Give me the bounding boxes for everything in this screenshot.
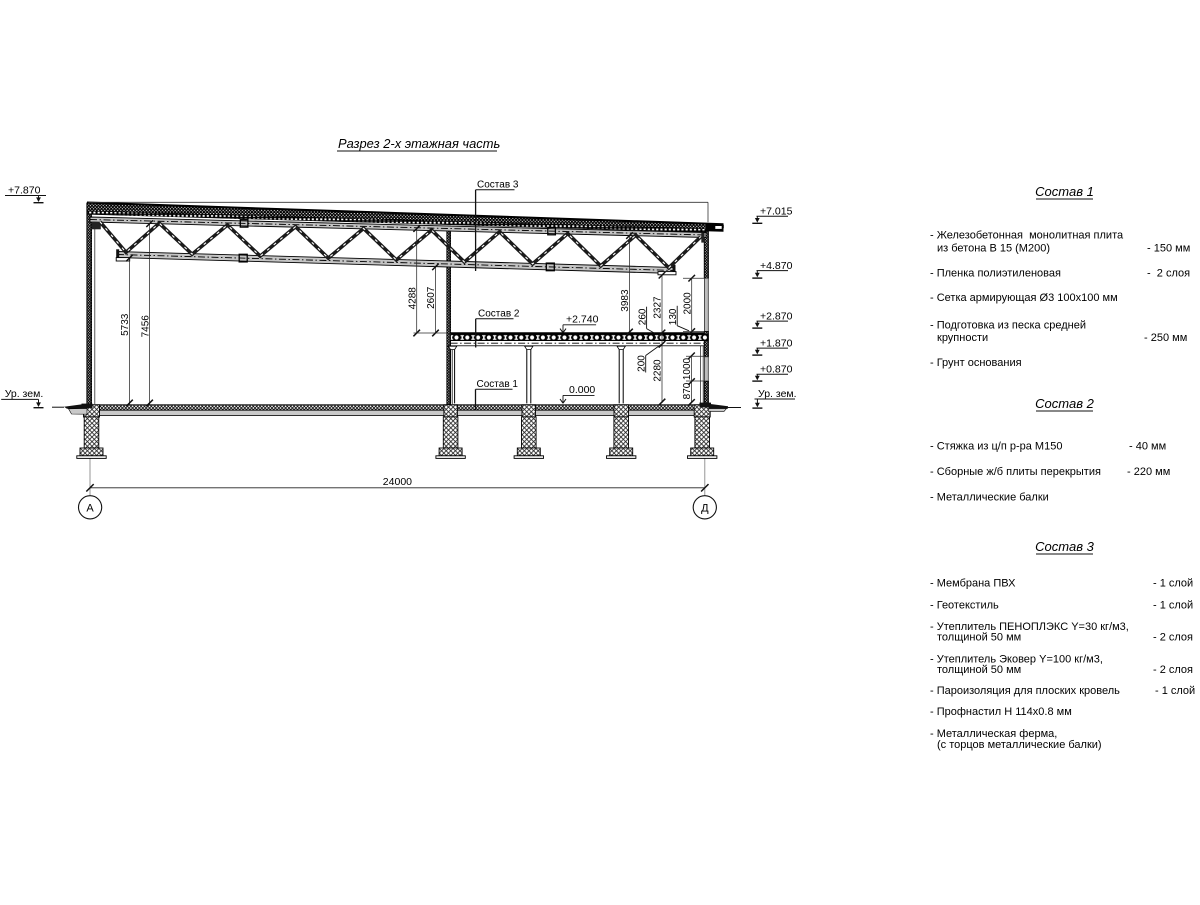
svg-text:- Пароизоляция для плоских кро: - Пароизоляция для плоских кровель bbox=[930, 685, 1120, 697]
svg-text:(с торцов металлические балки): (с торцов металлические балки) bbox=[937, 739, 1102, 751]
svg-text:- Профнастил Н 114х0.8 мм: - Профнастил Н 114х0.8 мм bbox=[930, 706, 1072, 718]
svg-text:- Сетка армирующая Ø3 100х100: - Сетка армирующая Ø3 100х100 мм bbox=[930, 292, 1118, 304]
svg-text:3983: 3983 bbox=[620, 289, 631, 312]
svg-text:+1.870: +1.870 bbox=[760, 337, 793, 349]
svg-text:- 1 слой: - 1 слой bbox=[1155, 685, 1195, 697]
svg-text:+2.740: +2.740 bbox=[566, 314, 599, 326]
svg-text:- Геотекстиль: - Геотекстиль bbox=[930, 600, 999, 612]
svg-text:Разрез 2-х этажная часть: Разрез 2-х этажная часть bbox=[338, 136, 500, 151]
svg-text:из бетона В 15 (М200): из бетона В 15 (М200) bbox=[937, 243, 1050, 255]
svg-text:Состав 2: Состав 2 bbox=[1035, 396, 1094, 411]
svg-text:+2.870: +2.870 bbox=[760, 310, 793, 322]
svg-text:- Железобетонная монолитная п: - Железобетонная монолитная плита bbox=[930, 230, 1124, 242]
svg-text:Состав 2: Состав 2 bbox=[478, 309, 520, 320]
svg-text:2327: 2327 bbox=[653, 296, 664, 319]
svg-text:+4.870: +4.870 bbox=[760, 260, 793, 272]
svg-text:7456: 7456 bbox=[140, 315, 151, 338]
svg-text:Состав 1: Состав 1 bbox=[1035, 184, 1094, 199]
svg-text:2607: 2607 bbox=[426, 286, 437, 309]
svg-text:- 2 слоя: - 2 слоя bbox=[1153, 632, 1193, 644]
svg-text:- 1 слой: - 1 слой bbox=[1153, 600, 1193, 612]
svg-text:+0.870: +0.870 bbox=[760, 364, 793, 376]
svg-text:870: 870 bbox=[682, 382, 693, 399]
svg-text:1000: 1000 bbox=[682, 357, 693, 380]
svg-text:- 40 мм: - 40 мм bbox=[1129, 441, 1166, 453]
svg-text:Ур. зем.: Ур. зем. bbox=[758, 388, 797, 400]
svg-text:24000: 24000 bbox=[383, 476, 412, 488]
svg-text:Состав 1: Состав 1 bbox=[477, 379, 519, 390]
svg-text:+7.870: +7.870 bbox=[8, 184, 41, 196]
svg-text:- 2 слоя: - 2 слоя bbox=[1153, 664, 1193, 676]
svg-text:- Стяжка из ц/п р-ра М150: - Стяжка из ц/п р-ра М150 bbox=[930, 441, 1062, 453]
svg-text:- Пленка полиэтиленовая: - Пленка полиэтиленовая bbox=[930, 268, 1061, 280]
svg-text:Состав 3: Состав 3 bbox=[477, 180, 519, 191]
svg-text:- Мембрана ПВХ: - Мембрана ПВХ bbox=[930, 578, 1016, 590]
svg-text:5733: 5733 bbox=[120, 313, 131, 336]
svg-text:Состав 3: Состав 3 bbox=[1035, 539, 1094, 554]
svg-text:+7.015: +7.015 bbox=[760, 206, 793, 218]
svg-text:- 1 слой: - 1 слой bbox=[1153, 578, 1193, 590]
svg-text:4288: 4288 bbox=[407, 287, 418, 310]
svg-text:Д: Д bbox=[701, 502, 709, 514]
svg-text:- Подготовка из песка средней: - Подготовка из песка средней bbox=[930, 320, 1086, 332]
svg-text:- 220 мм: - 220 мм bbox=[1127, 466, 1170, 478]
svg-text:- 150 мм: - 150 мм bbox=[1147, 243, 1190, 255]
svg-text:А: А bbox=[86, 502, 94, 514]
svg-text:толщиной 50 мм: толщиной 50 мм bbox=[937, 664, 1021, 676]
svg-text:- 2 слоя: - 2 слоя bbox=[1147, 268, 1190, 280]
svg-text:- Сборные ж/б плиты перекрытия: - Сборные ж/б плиты перекрытия bbox=[930, 466, 1101, 478]
svg-text:2000: 2000 bbox=[682, 292, 693, 315]
svg-text:- Грунт основания: - Грунт основания bbox=[930, 357, 1022, 369]
svg-text:крупности: крупности bbox=[937, 332, 988, 344]
svg-text:Ур. зем.: Ур. зем. bbox=[5, 388, 44, 400]
svg-text:- Металлические балки: - Металлические балки bbox=[930, 492, 1049, 504]
svg-text:2280: 2280 bbox=[653, 359, 664, 382]
svg-text:- 250 мм: - 250 мм bbox=[1144, 332, 1187, 344]
svg-text:0.000: 0.000 bbox=[569, 384, 595, 396]
svg-text:толщиной 50 мм: толщиной 50 мм bbox=[937, 632, 1021, 644]
